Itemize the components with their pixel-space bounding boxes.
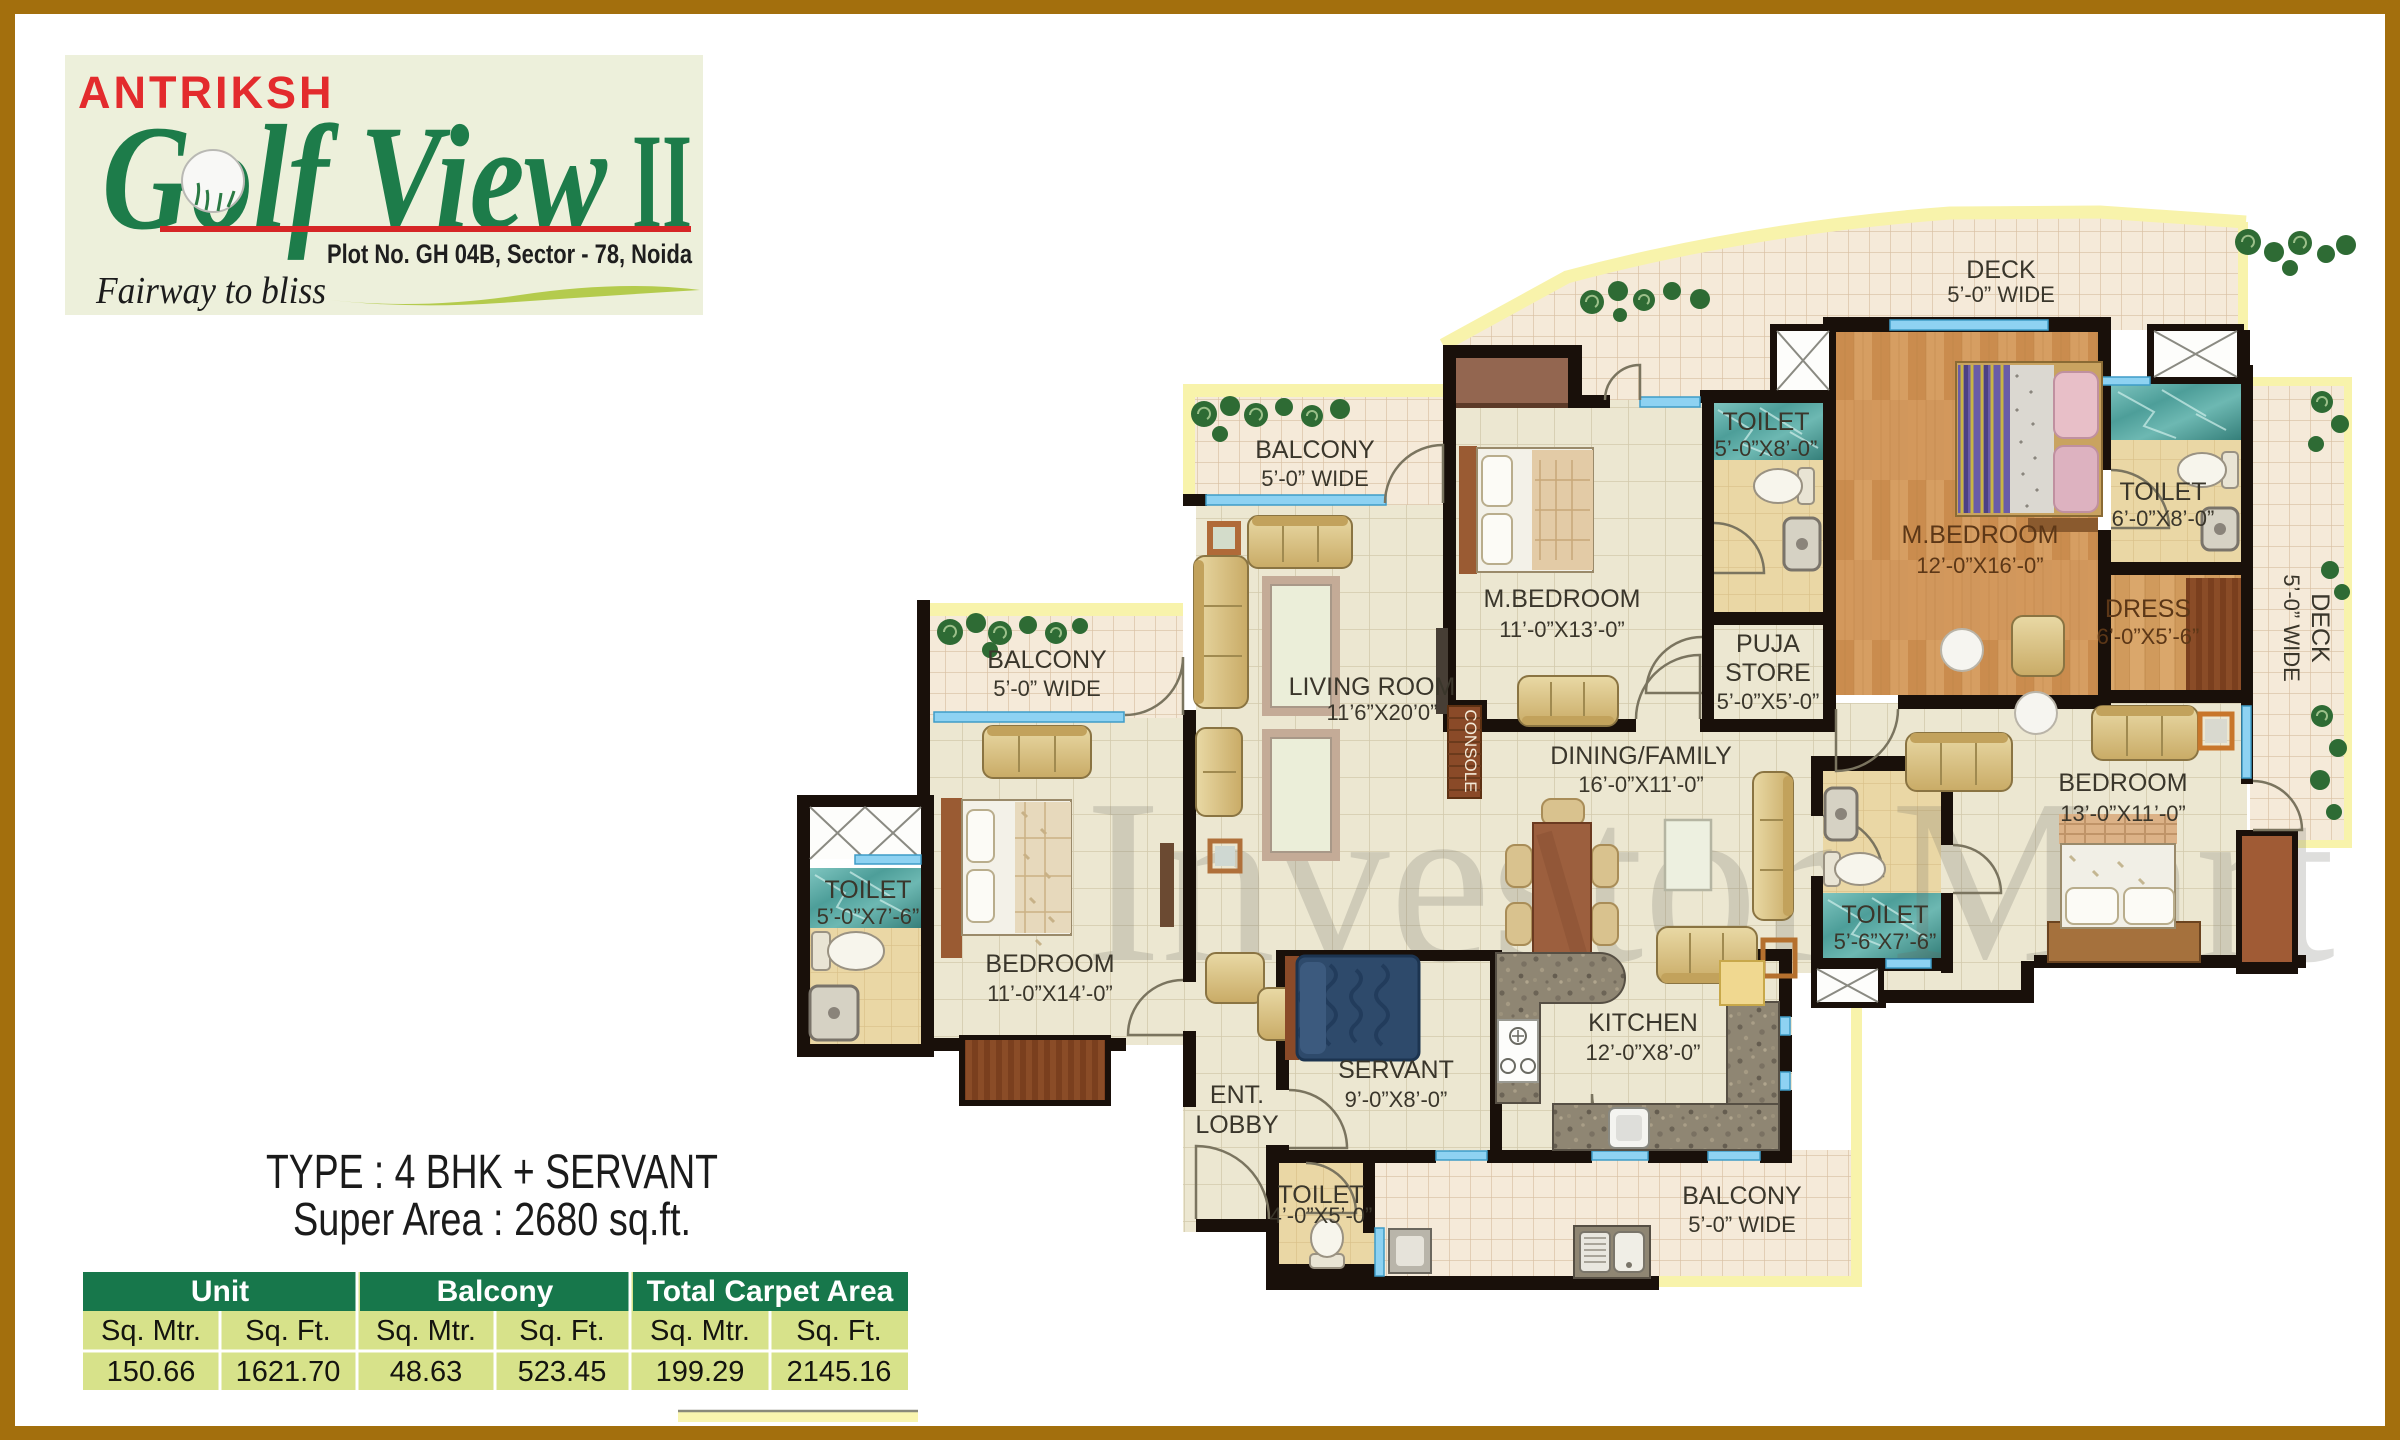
svg-text:Sq. Ft.: Sq. Ft. bbox=[796, 1315, 881, 1347]
svg-text:TOILET: TOILET bbox=[1722, 408, 1809, 436]
svg-text:12’-0”X8’-0”: 12’-0”X8’-0” bbox=[1586, 1040, 1701, 1065]
svg-text:11’-0”X13’-0”: 11’-0”X13’-0” bbox=[1499, 617, 1625, 642]
svg-text:TOILET: TOILET bbox=[824, 876, 911, 904]
svg-text:5’-0”X8’-0”: 5’-0”X8’-0” bbox=[1715, 436, 1818, 461]
svg-text:KITCHEN: KITCHEN bbox=[1588, 1009, 1698, 1037]
svg-text:M.BEDROOM: M.BEDROOM bbox=[1902, 521, 2059, 549]
svg-text:12’-0”X16’-0”: 12’-0”X16’-0” bbox=[1916, 553, 2043, 578]
svg-text:6’-0”X5’-6”: 6’-0”X5’-6” bbox=[2097, 624, 2200, 649]
svg-text:Balcony: Balcony bbox=[437, 1275, 554, 1308]
svg-text:BALCONY: BALCONY bbox=[1255, 436, 1375, 464]
svg-text:16’-0”X11’-0”: 16’-0”X11’-0” bbox=[1578, 772, 1704, 797]
svg-text:9’-0”X8’-0”: 9’-0”X8’-0” bbox=[1345, 1087, 1448, 1112]
svg-text:SERVANT: SERVANT bbox=[1338, 1056, 1454, 1084]
svg-text:Unit: Unit bbox=[191, 1275, 249, 1308]
svg-text:BEDROOM: BEDROOM bbox=[2058, 769, 2187, 797]
svg-text:Plot No. GH 04B, Sector - 78,: Plot No. GH 04B, Sector - 78, Noida bbox=[327, 239, 693, 269]
svg-text:DINING/FAMILY: DINING/FAMILY bbox=[1550, 742, 1732, 770]
svg-text:DECK: DECK bbox=[2306, 593, 2334, 663]
svg-text:Fairway to bliss: Fairway to bliss bbox=[95, 270, 326, 312]
svg-text:199.29: 199.29 bbox=[656, 1356, 745, 1388]
svg-text:Sq. Mtr.: Sq. Mtr. bbox=[101, 1315, 201, 1347]
svg-text:TOILET: TOILET bbox=[2119, 478, 2206, 506]
svg-text:Sq. Ft.: Sq. Ft. bbox=[245, 1315, 330, 1347]
svg-text:150.66: 150.66 bbox=[107, 1356, 196, 1388]
svg-text:48.63: 48.63 bbox=[390, 1356, 463, 1388]
svg-text:CONSOLE: CONSOLE bbox=[1461, 709, 1480, 792]
svg-text:Super Area : 2680 sq.ft.: Super Area : 2680 sq.ft. bbox=[293, 1193, 691, 1245]
svg-text:5’-6”X7’-6”: 5’-6”X7’-6” bbox=[1834, 929, 1937, 954]
svg-text:M.BEDROOM: M.BEDROOM bbox=[1484, 585, 1641, 613]
svg-text:5’-0” WIDE: 5’-0” WIDE bbox=[2279, 574, 2304, 682]
svg-text:5’-0”X7’-6”: 5’-0”X7’-6” bbox=[817, 904, 920, 929]
svg-text:BEDROOM: BEDROOM bbox=[985, 950, 1114, 978]
svg-text:TYPE : 4 BHK + SERVANT: TYPE : 4 BHK + SERVANT bbox=[266, 1146, 718, 1199]
svg-text:ENT.: ENT. bbox=[1210, 1081, 1264, 1109]
svg-text:13’-0”X11’-0”: 13’-0”X11’-0” bbox=[2060, 801, 2186, 826]
svg-text:DECK: DECK bbox=[1966, 256, 2036, 284]
svg-text:BALCONY: BALCONY bbox=[1682, 1182, 1802, 1210]
svg-text:Sq. Ft.: Sq. Ft. bbox=[519, 1315, 604, 1347]
svg-text:STORE: STORE bbox=[1725, 659, 1811, 687]
svg-text:PUJA: PUJA bbox=[1736, 630, 1800, 658]
svg-text:5’-0” WIDE: 5’-0” WIDE bbox=[993, 676, 1101, 701]
svg-text:4’-0”X5’-0”: 4’-0”X5’-0” bbox=[1270, 1203, 1373, 1228]
svg-text:5’-0” WIDE: 5’-0” WIDE bbox=[1688, 1212, 1796, 1237]
svg-text:II: II bbox=[632, 105, 692, 258]
svg-text:2145.16: 2145.16 bbox=[787, 1356, 892, 1388]
svg-text:Total Carpet Area: Total Carpet Area bbox=[647, 1275, 894, 1308]
svg-text:Sq. Mtr.: Sq. Mtr. bbox=[376, 1315, 476, 1347]
svg-text:Golf View: Golf View bbox=[102, 95, 608, 261]
svg-text:523.45: 523.45 bbox=[518, 1356, 607, 1388]
svg-text:11’-0”X14’-0”: 11’-0”X14’-0” bbox=[987, 981, 1113, 1006]
svg-text:1621.70: 1621.70 bbox=[236, 1356, 341, 1388]
svg-text:5’-0”X5’-0”: 5’-0”X5’-0” bbox=[1717, 689, 1820, 714]
svg-text:11’6”X20’0”: 11’6”X20’0” bbox=[1327, 700, 1438, 725]
svg-text:LIVING ROOM: LIVING ROOM bbox=[1289, 673, 1456, 701]
svg-text:5’-0” WIDE: 5’-0” WIDE bbox=[1261, 466, 1369, 491]
svg-text:LOBBY: LOBBY bbox=[1195, 1111, 1279, 1139]
svg-text:Sq. Mtr.: Sq. Mtr. bbox=[650, 1315, 750, 1347]
svg-text:BALCONY: BALCONY bbox=[987, 646, 1107, 674]
svg-text:TOILET: TOILET bbox=[1841, 901, 1928, 929]
svg-text:5’-0” WIDE: 5’-0” WIDE bbox=[1947, 282, 2055, 307]
svg-text:DRESS: DRESS bbox=[2105, 595, 2191, 623]
svg-text:6’-0”X8’-0”: 6’-0”X8’-0” bbox=[2112, 506, 2215, 531]
